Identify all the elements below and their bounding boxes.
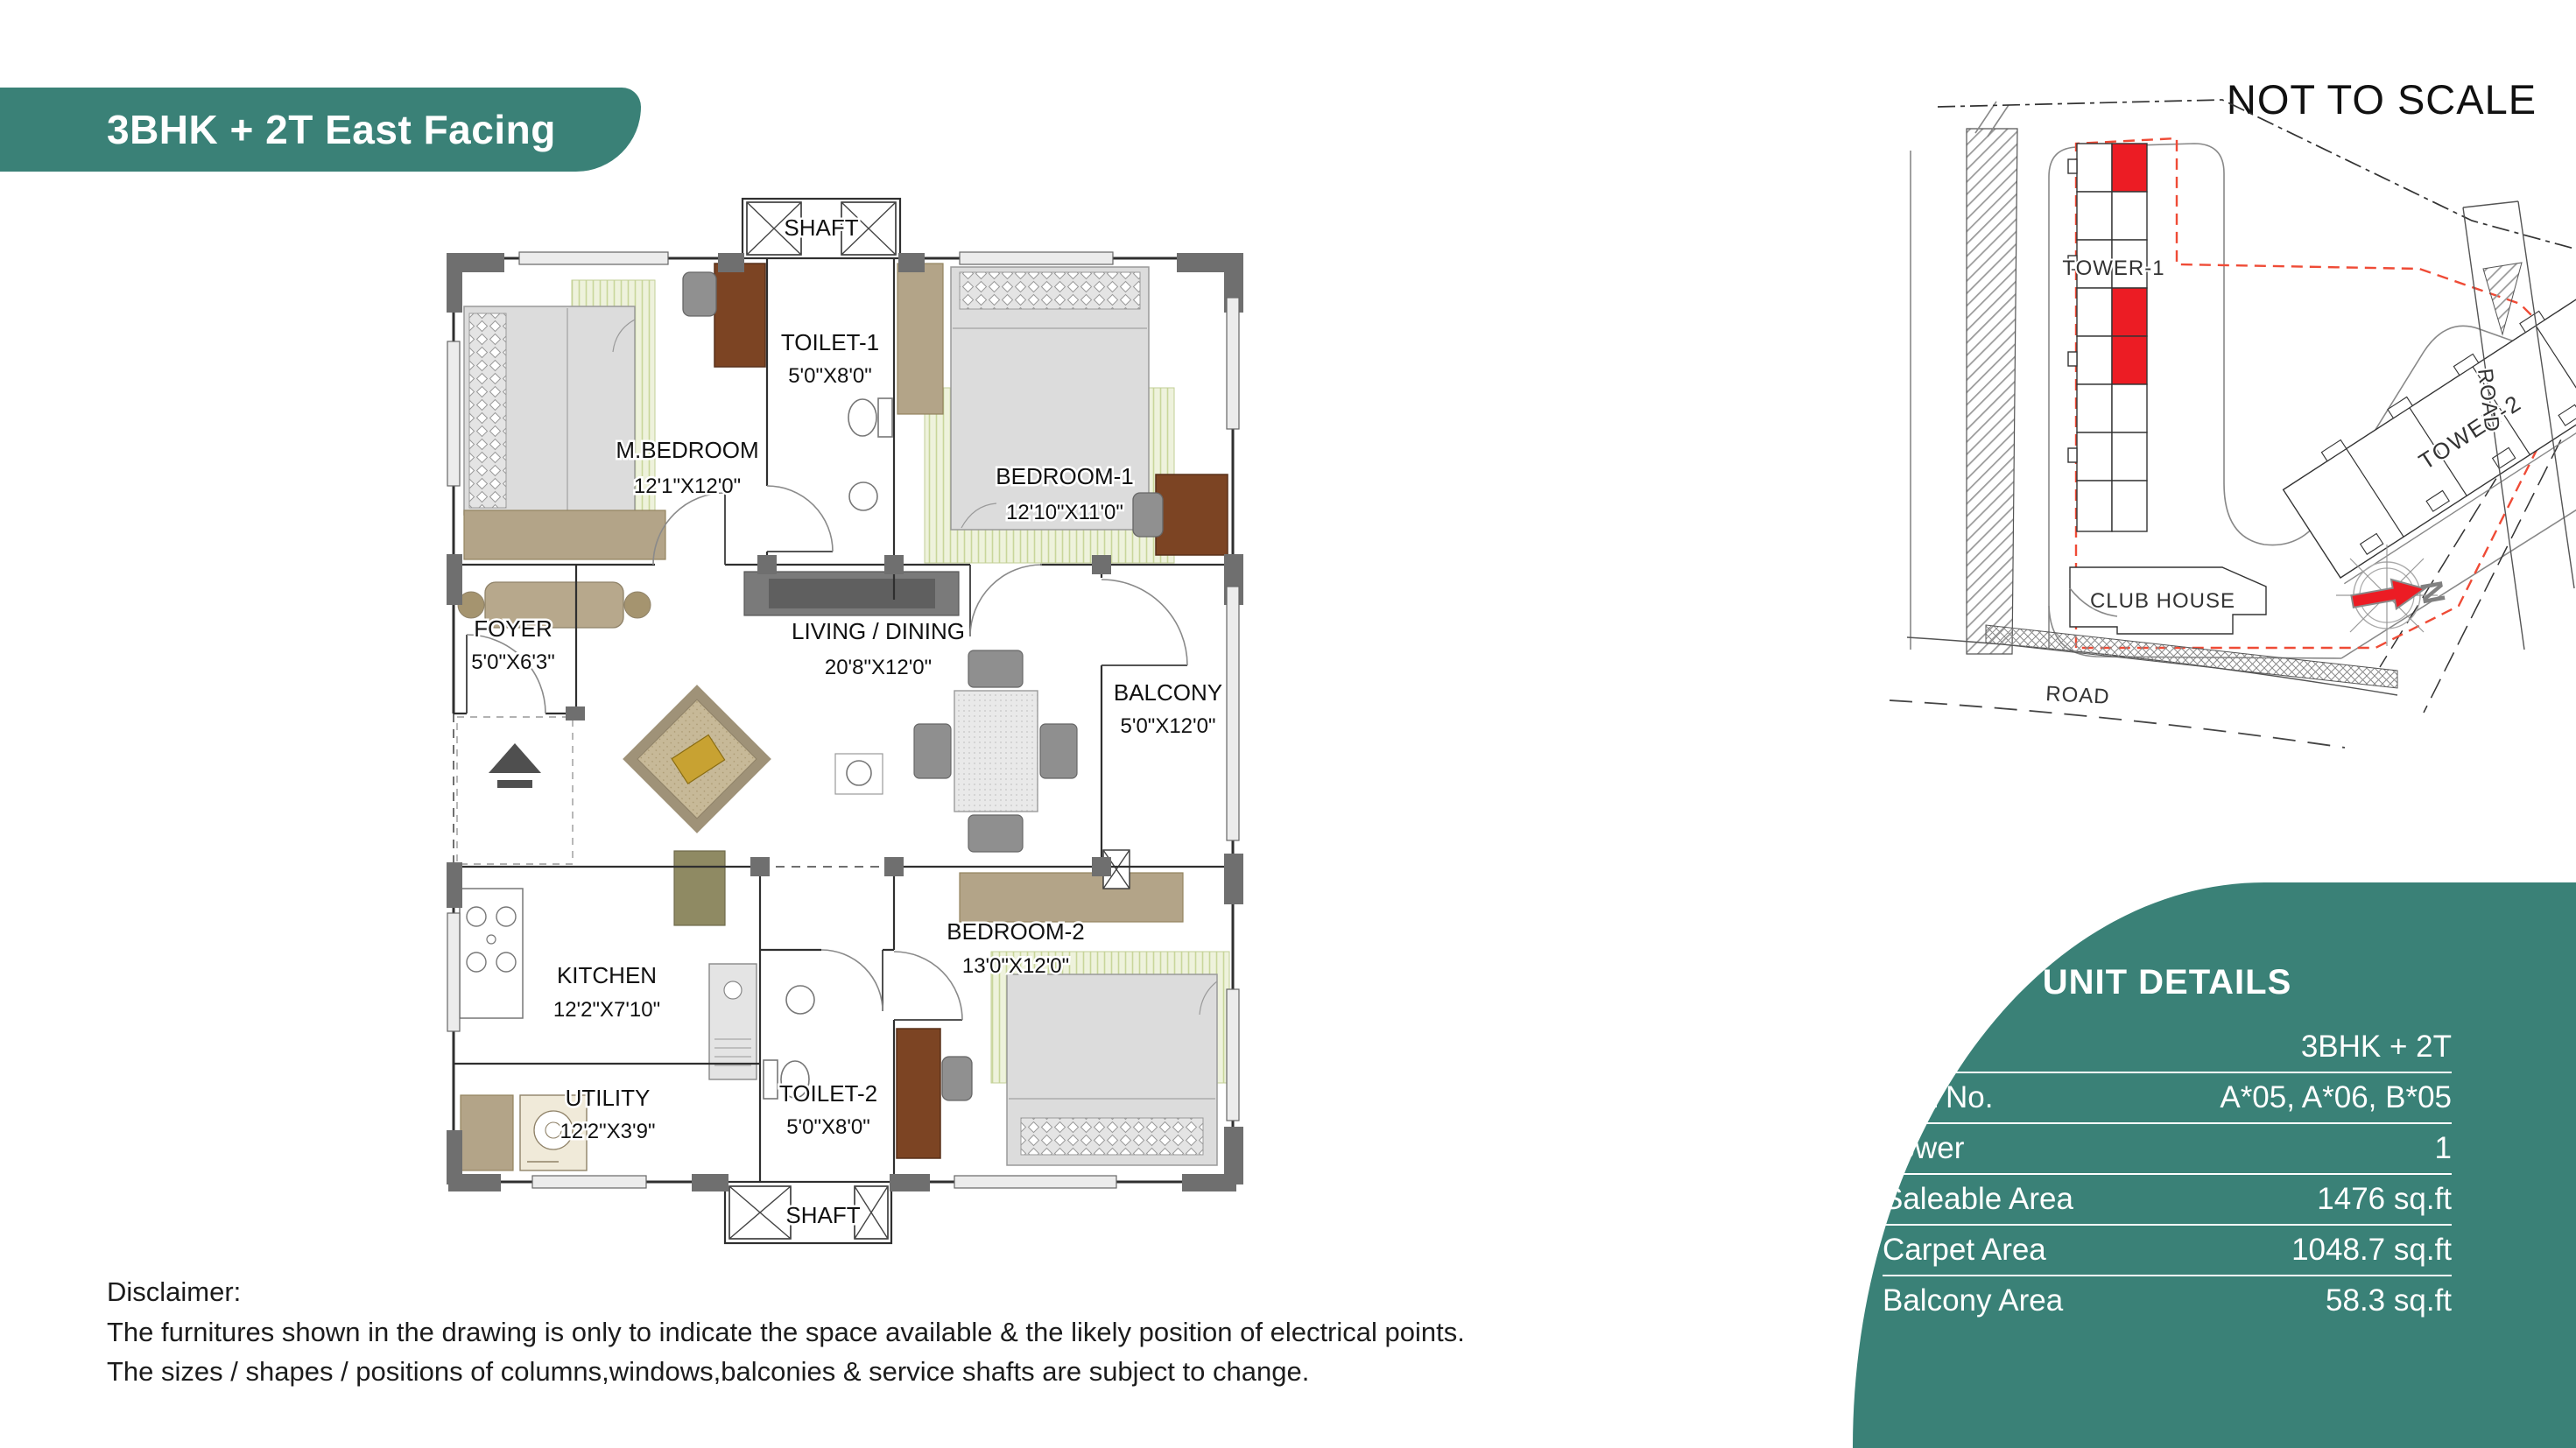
tower1: TOWER-1 — [2062, 144, 2164, 531]
mbedroom-bench — [464, 510, 665, 559]
room-label-toilet1: TOILET-1 — [781, 329, 879, 355]
room-dims-balcony: 5'0"X12'0" — [1121, 714, 1216, 738]
scale-note: NOT TO SCALE — [2227, 76, 2537, 123]
row-label: Balcony Area — [1883, 1283, 2063, 1318]
bedroom2-desk — [897, 1029, 940, 1158]
unit-details-heading: UNIT DETAILS — [1883, 963, 2452, 1002]
row-value: 1476 sq.ft — [2317, 1182, 2452, 1217]
room-dims-living: 20'8"X12'0" — [825, 656, 932, 679]
club-house-label: CLUB HOUSE — [2090, 589, 2235, 613]
title-banner: 3BHK + 2T East Facing — [0, 88, 641, 172]
bedroom1-bed — [951, 267, 1149, 530]
row-value: 3BHK + 2T — [2301, 1030, 2452, 1065]
room-dims-mbedroom: 12'1"X12'0" — [634, 474, 741, 498]
bedroom1-desk — [1156, 474, 1228, 555]
mbedroom-wardrobe — [714, 264, 765, 367]
row-label: Type — [1883, 1030, 1949, 1065]
disclaimer-line: The furnitures shown in the drawing is o… — [107, 1317, 1465, 1348]
bedroom2-chair — [942, 1057, 972, 1100]
room-dims-kitchen: 12'2"X7'10" — [553, 998, 660, 1022]
room-dims-bedroom2: 13'0"X12'0" — [962, 954, 1069, 978]
bedroom2-bed — [1007, 974, 1217, 1165]
unit-details-panel: UNIT DETAILS Type 3BHK + 2T Unit No. A*0… — [1853, 882, 2576, 1448]
row-label: Unit No. — [1883, 1080, 1993, 1115]
table-row: Balcony Area 58.3 sq.ft — [1883, 1276, 2452, 1325]
row-value: A*05, A*06, B*05 — [2220, 1080, 2452, 1115]
kitchen-sink-counter — [709, 964, 757, 1079]
table-row: Tower 1 — [1883, 1124, 2452, 1175]
room-label-utility: UTILITY — [566, 1085, 651, 1111]
disclaimer-title: Disclaimer: — [107, 1276, 1465, 1308]
kitchen-cabinet — [674, 851, 725, 925]
table-row: Unit No. A*05, A*06, B*05 — [1883, 1073, 2452, 1124]
table-row: Type 3BHK + 2T — [1883, 1023, 2452, 1073]
room-dims-bedroom1: 12'10"X11'0" — [1006, 501, 1123, 524]
utility-counter — [461, 1095, 513, 1170]
mbedroom-bed — [464, 306, 635, 515]
kitchen-stove — [460, 889, 523, 1018]
disclaimer-line: The sizes / shapes / positions of column… — [107, 1356, 1465, 1388]
unit-details-table: Type 3BHK + 2T Unit No. A*05, A*06, B*05… — [1883, 1023, 2452, 1325]
entry-arrow-icon — [489, 743, 541, 788]
site-map-drawing: NOT TO SCALE — [1855, 46, 2576, 759]
row-value: 1048.7 sq.ft — [2291, 1233, 2452, 1268]
toilet2-basin — [786, 986, 814, 1014]
toilet1-wc — [848, 398, 892, 437]
label-shaft-bottom: SHAFT — [785, 1202, 860, 1228]
row-label: Tower — [1883, 1131, 1964, 1166]
toilet1-basin — [849, 482, 877, 510]
row-value: 1 — [2435, 1131, 2452, 1166]
table-row: Saleable Area 1476 sq.ft — [1883, 1175, 2452, 1226]
room-label-bedroom2: BEDROOM-2 — [947, 918, 1084, 945]
floor-plan-drawing: M.BEDROOM 12'1"X12'0" TOILET-1 5'0"X8'0"… — [436, 188, 1255, 1261]
row-label: Carpet Area — [1883, 1233, 2046, 1268]
entry-lobby — [457, 717, 573, 864]
site-map: NOT TO SCALE — [1855, 46, 2576, 759]
room-label-bedroom1: BEDROOM-1 — [996, 463, 1133, 489]
bedroom2-dresser — [960, 873, 1183, 922]
tower1-label: TOWER-1 — [2062, 257, 2164, 280]
room-dims-utility: 12'2"X3'9" — [560, 1120, 656, 1143]
room-label-mbedroom: M.BEDROOM — [616, 437, 758, 463]
living-rug — [623, 685, 771, 833]
brochure-page: 3BHK + 2T East Facing — [0, 0, 2576, 1448]
room-label-kitchen: KITCHEN — [557, 962, 657, 988]
mbedroom-chair — [683, 272, 716, 316]
table-row: Carpet Area 1048.7 sq.ft — [1883, 1226, 2452, 1276]
row-label: Saleable Area — [1883, 1182, 2073, 1217]
room-dims-foyer: 5'0"X6'3" — [471, 650, 555, 674]
row-value: 58.3 sq.ft — [2326, 1283, 2452, 1318]
room-dims-toilet2: 5'0"X8'0" — [786, 1115, 870, 1139]
label-shaft-top: SHAFT — [784, 214, 858, 241]
room-label-toilet2: TOILET-2 — [779, 1080, 877, 1107]
room-label-balcony: BALCONY — [1114, 679, 1222, 706]
dining-set — [914, 650, 1077, 852]
room-label-foyer: FOYER — [474, 615, 553, 642]
page-title: 3BHK + 2T East Facing — [107, 88, 556, 172]
floor-plan: M.BEDROOM 12'1"X12'0" TOILET-1 5'0"X8'0"… — [436, 188, 1255, 1261]
tower2: TOWER-2 — [2277, 276, 2576, 584]
room-label-living: LIVING / DINING — [792, 618, 965, 644]
left-road — [1911, 102, 2017, 654]
room-dims-toilet1: 5'0"X8'0" — [788, 364, 872, 388]
disclaimer: Disclaimer: The furnitures shown in the … — [107, 1276, 1465, 1395]
compass-north-label: N — [2413, 578, 2453, 607]
bedroom1-wardrobe — [897, 264, 943, 414]
bedroom1-chair — [1133, 493, 1163, 537]
tv-console — [744, 572, 959, 615]
bottom-road: ROAD — [1890, 625, 2397, 748]
road-bottom-label: ROAD — [2045, 682, 2111, 709]
club-house: CLUB HOUSE — [2070, 567, 2266, 634]
passage-basin — [835, 754, 883, 794]
